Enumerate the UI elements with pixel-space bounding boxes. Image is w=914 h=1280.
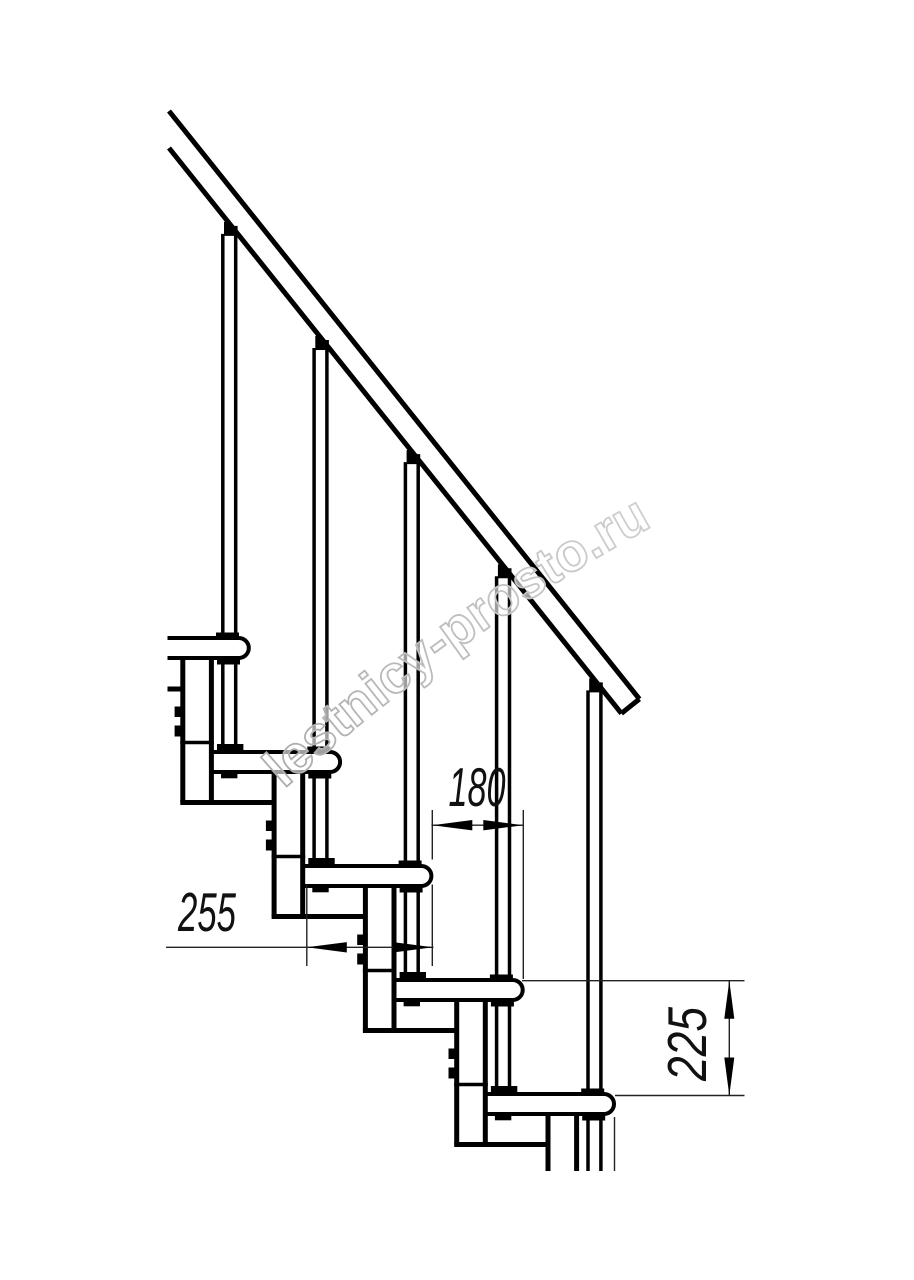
svg-text:255: 255 <box>177 881 236 943</box>
svg-text:225: 225 <box>656 1007 718 1082</box>
svg-text:180: 180 <box>449 756 506 818</box>
